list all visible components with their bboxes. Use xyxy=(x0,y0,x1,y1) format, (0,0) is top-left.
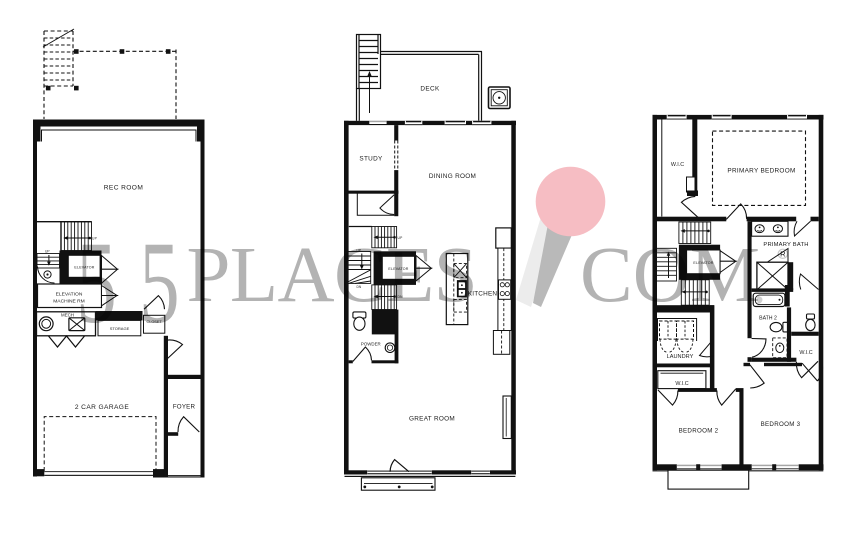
svg-text:REC ROOM: REC ROOM xyxy=(104,185,143,192)
svg-text:55: 55 xyxy=(76,217,202,347)
svg-text:PLACES: PLACES xyxy=(187,232,478,319)
svg-text:W.I.C: W.I.C xyxy=(799,350,812,356)
svg-text:GREAT ROOM: GREAT ROOM xyxy=(409,415,455,422)
svg-text:PRIMARY BEDROOM: PRIMARY BEDROOM xyxy=(727,168,795,175)
svg-text:UP: UP xyxy=(45,249,50,253)
svg-text:MECH: MECH xyxy=(61,313,74,318)
svg-text:FOYER: FOYER xyxy=(173,404,196,411)
svg-text:STUDY: STUDY xyxy=(359,156,383,163)
svg-text:2 CAR GARAGE: 2 CAR GARAGE xyxy=(75,404,129,411)
svg-text:R: R xyxy=(780,250,786,259)
svg-text:W.I.C: W.I.C xyxy=(671,162,684,168)
svg-text:POWDER: POWDER xyxy=(361,342,381,347)
svg-text:BATH 2: BATH 2 xyxy=(759,315,777,321)
svg-text:PRIMARY BATH: PRIMARY BATH xyxy=(763,242,808,248)
svg-text:DECK: DECK xyxy=(420,86,440,93)
svg-text:BEDROOM 3: BEDROOM 3 xyxy=(761,421,801,428)
svg-text:LAUNDRY: LAUNDRY xyxy=(667,354,694,360)
svg-text:BEDROOM 2: BEDROOM 2 xyxy=(679,428,719,435)
svg-text:COM: COM xyxy=(580,232,760,319)
svg-text:W.I.C: W.I.C xyxy=(675,381,688,387)
svg-text:DINING ROOM: DINING ROOM xyxy=(429,173,476,180)
